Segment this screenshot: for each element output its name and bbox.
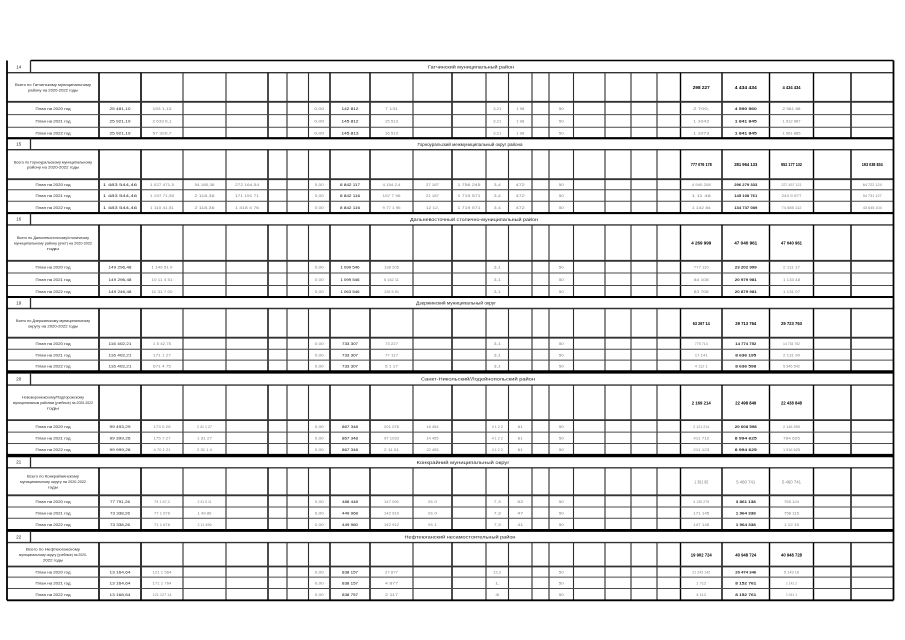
svg-text:227 457 121: 227 457 121 xyxy=(782,182,803,187)
svg-text:794 625: 794 625 xyxy=(783,436,801,441)
svg-text:0,00: 0,00 xyxy=(315,499,325,504)
svg-text:149 296,48: 149 296,48 xyxy=(109,265,133,270)
svg-text:411 712: 411 712 xyxy=(693,436,710,441)
svg-text:50: 50 xyxy=(559,130,565,135)
svg-text:годы: годы xyxy=(47,246,59,251)
svg-text:449 968: 449 968 xyxy=(342,510,359,515)
svg-text:4 70 1 21: 4 70 1 21 xyxy=(154,447,172,452)
svg-text:50: 50 xyxy=(559,424,565,429)
svg-text:22: 22 xyxy=(16,534,21,539)
svg-text:73 338,26: 73 338,26 xyxy=(110,522,131,527)
svg-text:1 49 86: 1 49 86 xyxy=(198,510,213,515)
svg-text:99 493,29: 99 493,29 xyxy=(110,424,132,429)
svg-text:22 455: 22 455 xyxy=(427,447,440,452)
svg-text:Нефтеюганский несамостоятельны: Нефтеюганский несамостоятельный район xyxy=(405,535,517,540)
svg-text:22 498 849: 22 498 849 xyxy=(735,400,757,405)
svg-text:272 164,54: 272 164,54 xyxy=(235,182,260,187)
svg-text:0,00: 0,00 xyxy=(315,581,325,586)
svg-text:0,00: 0,00 xyxy=(315,510,325,515)
svg-text:50: 50 xyxy=(559,363,565,368)
svg-text:13 164,64: 13 164,64 xyxy=(110,570,132,575)
svg-text:План на 2021 год: План на 2021 год xyxy=(36,193,72,198)
svg-text:2 169 214: 2 169 214 xyxy=(692,400,712,405)
svg-text:План на 2021 год: План на 2021 год xyxy=(36,119,72,124)
svg-text:0,00: 0,00 xyxy=(315,436,325,441)
svg-text:0,00: 0,00 xyxy=(315,289,325,294)
svg-text:12,2: 12,2 xyxy=(493,570,502,575)
svg-text:5 1 17: 5 1 17 xyxy=(385,363,399,368)
svg-text:2 121 214: 2 121 214 xyxy=(693,424,710,429)
svg-text:755 124: 755 124 xyxy=(784,499,800,504)
svg-text:121 1 564: 121 1 564 xyxy=(153,570,173,575)
svg-text:План на 2022 год: План на 2022 год xyxy=(36,205,72,210)
svg-text:298 227: 298 227 xyxy=(693,85,711,90)
svg-text:91 0: 91 0 xyxy=(428,510,438,515)
svg-text:11 31 7 00: 11 31 7 00 xyxy=(152,289,174,294)
svg-text:153 1,13: 153 1,13 xyxy=(153,106,173,111)
svg-text:63 267 14: 63 267 14 xyxy=(693,321,711,326)
svg-text:6 162 11: 6 162 11 xyxy=(384,277,400,282)
svg-text:20 608 598: 20 608 598 xyxy=(735,424,758,429)
svg-text:134 737 089: 134 737 089 xyxy=(734,205,758,210)
svg-text:1 719 571: 1 719 571 xyxy=(458,193,482,198)
svg-text:4 1 2 2: 4 1 2 2 xyxy=(492,447,504,452)
svg-text:0,00: 0,00 xyxy=(314,119,325,124)
svg-text:47 040 961: 47 040 961 xyxy=(781,241,803,246)
svg-text:1 133 48: 1 133 48 xyxy=(783,277,801,282)
svg-text:8 842 116: 8 842 116 xyxy=(340,193,361,198)
svg-text:16 513: 16 513 xyxy=(385,130,399,135)
svg-text:3,1: 3,1 xyxy=(494,277,502,282)
svg-text:План на 2022 год: План на 2022 год xyxy=(36,289,72,294)
svg-text:171 1 27: 171 1 27 xyxy=(153,352,172,357)
svg-text:8 994 625: 8 994 625 xyxy=(735,447,758,452)
svg-text:50: 50 xyxy=(559,581,565,586)
svg-text:243 9 577: 243 9 577 xyxy=(782,193,803,198)
svg-text:838 157: 838 157 xyxy=(342,581,359,586)
svg-text:27 877: 27 877 xyxy=(385,570,399,575)
svg-text:1 12 15: 1 12 15 xyxy=(784,522,800,527)
svg-text:149 246,48: 149 246,48 xyxy=(109,289,133,294)
svg-text:1 063 546: 1 063 546 xyxy=(341,289,361,294)
svg-text:7,3: 7,3 xyxy=(494,522,502,527)
svg-text:61: 61 xyxy=(518,436,524,441)
svg-text:50: 50 xyxy=(559,522,565,527)
svg-text:50: 50 xyxy=(559,352,565,357)
svg-text:План на 2020 год: План на 2020 год xyxy=(36,182,72,187)
svg-text:171 1 764: 171 1 764 xyxy=(153,581,173,586)
svg-text:43 645 104: 43 645 104 xyxy=(863,205,883,210)
svg-text:19 902 724: 19 902 724 xyxy=(691,552,713,557)
svg-text:73 227: 73 227 xyxy=(385,341,399,346)
svg-text:4 112: 4 112 xyxy=(696,592,707,597)
svg-text:Всего по Дзержинскому муниципа: Всего по Дзержинскому муниципальному xyxy=(16,318,90,323)
svg-text:147 145: 147 145 xyxy=(693,522,710,527)
svg-text:21 187: 21 187 xyxy=(426,193,440,198)
svg-text:14: 14 xyxy=(16,64,21,69)
svg-text:175 7 27: 175 7 27 xyxy=(154,436,172,441)
svg-text:4 434 434: 4 434 434 xyxy=(735,85,758,90)
svg-text:1 961 885: 1 961 885 xyxy=(783,130,802,135)
svg-text:54 180,36: 54 180,36 xyxy=(195,182,216,187)
svg-text:3,1: 3,1 xyxy=(494,289,502,294)
svg-text:47: 47 xyxy=(517,510,524,515)
svg-text:2 41 5 11: 2 41 5 11 xyxy=(198,499,213,504)
svg-text:61: 61 xyxy=(518,424,524,429)
svg-text:Всего по Горноуральскому муниц: Всего по Горноуральскому муниципальному xyxy=(14,159,92,164)
svg-text:2 31 1 4: 2 31 1 4 xyxy=(197,447,213,452)
svg-text:4 877: 4 877 xyxy=(385,581,399,586)
svg-text:52: 52 xyxy=(517,499,524,504)
svg-text:2 11 496: 2 11 496 xyxy=(198,522,213,527)
svg-text:7 131: 7 131 xyxy=(385,106,399,111)
svg-text:5 460 741: 5 460 741 xyxy=(782,479,802,484)
svg-text:97 1033: 97 1033 xyxy=(384,436,400,441)
svg-text:1 027 471,5: 1 027 471,5 xyxy=(150,182,175,187)
svg-text:552 177 132: 552 177 132 xyxy=(781,162,803,167)
svg-text:8 636 598: 8 636 598 xyxy=(735,363,757,368)
svg-text:8 152 761: 8 152 761 xyxy=(735,581,757,586)
svg-text:1 483 544,46: 1 483 544,46 xyxy=(103,182,138,187)
svg-text:15 513: 15 513 xyxy=(385,119,399,124)
svg-text:25 921,19: 25 921,19 xyxy=(110,119,132,124)
svg-text:20 979 981: 20 979 981 xyxy=(735,277,758,282)
svg-text:0,00: 0,00 xyxy=(315,182,325,187)
svg-text:2 11 01: 2 11 01 xyxy=(384,447,400,452)
svg-text:муниципальным районам (учебные: муниципальным районам (учебные) на 2020-… xyxy=(13,400,94,405)
svg-text:0,00: 0,00 xyxy=(315,205,325,210)
svg-text:0,00: 0,00 xyxy=(315,447,325,452)
svg-text:21: 21 xyxy=(16,460,21,465)
svg-text:74 585 112: 74 585 112 xyxy=(782,205,803,210)
svg-text:План на 2022 год: План на 2022 год xyxy=(36,363,72,368)
svg-text:1 841 845: 1 841 845 xyxy=(735,119,758,124)
svg-text:142 812: 142 812 xyxy=(342,106,360,111)
svg-text:5 149 16: 5 149 16 xyxy=(784,570,800,575)
svg-text:1 141 2: 1 141 2 xyxy=(786,581,798,586)
svg-text:50: 50 xyxy=(559,341,565,346)
svg-text:1 964 338: 1 964 338 xyxy=(736,522,757,527)
svg-text:План на 2022 год: План на 2022 год xyxy=(36,592,72,597)
svg-text:3,21: 3,21 xyxy=(493,119,502,124)
svg-text:План на 2022 год: План на 2022 год xyxy=(36,447,72,452)
svg-text:29 723 763: 29 723 763 xyxy=(781,321,803,326)
svg-text:0,00: 0,00 xyxy=(315,352,325,357)
svg-text:41: 41 xyxy=(517,522,524,527)
svg-text:1 5 42,75: 1 5 42,75 xyxy=(153,341,172,346)
svg-text:83 708: 83 708 xyxy=(694,289,710,294)
svg-text:145 108 761: 145 108 761 xyxy=(734,193,758,198)
svg-text:0,00: 0,00 xyxy=(315,265,325,270)
svg-text:20: 20 xyxy=(16,377,21,382)
svg-text:867 348: 867 348 xyxy=(342,436,359,441)
svg-text:муниципальному району (учет) н: муниципальному району (учет) на 2020-202… xyxy=(14,240,93,245)
svg-text:9 77 1 96: 9 77 1 96 xyxy=(383,205,402,210)
svg-text:0,00: 0,00 xyxy=(314,106,325,111)
svg-text:756 115: 756 115 xyxy=(784,510,800,515)
svg-text:57 320,7: 57 320,7 xyxy=(153,130,173,135)
svg-text:91 1: 91 1 xyxy=(428,522,438,527)
svg-text:1 418 4 76: 1 418 4 76 xyxy=(235,205,260,210)
svg-text:61: 61 xyxy=(518,447,524,452)
svg-text:1 98: 1 98 xyxy=(516,106,525,111)
svg-text:201 076: 201 076 xyxy=(384,424,400,429)
svg-text:1 841 845: 1 841 845 xyxy=(735,130,758,135)
svg-text:50: 50 xyxy=(559,119,565,124)
svg-text:5 460 741: 5 460 741 xyxy=(736,479,756,484)
svg-text:50: 50 xyxy=(559,265,565,270)
svg-text:14 455: 14 455 xyxy=(427,436,440,441)
svg-text:1 483 544,46: 1 483 544,46 xyxy=(103,205,138,210)
svg-text:20 879 981: 20 879 981 xyxy=(735,289,758,294)
svg-text:99 399,26: 99 399,26 xyxy=(110,436,132,441)
svg-text:План на 2021 год: План на 2021 год xyxy=(36,352,72,357)
svg-text:2 633 6,1: 2 633 6,1 xyxy=(153,119,173,124)
svg-text:1 131 07: 1 131 07 xyxy=(783,289,801,294)
svg-text:472: 472 xyxy=(516,193,526,198)
svg-text:Всего по Нефтеюганскому: Всего по Нефтеюганскому xyxy=(26,547,80,552)
svg-text:733 307: 733 307 xyxy=(342,352,359,357)
svg-text:73 338,26: 73 338,26 xyxy=(110,510,131,515)
svg-text:План на 2020 год: План на 2020 год xyxy=(36,265,72,270)
svg-text:4 154 2,4: 4 154 2,4 xyxy=(383,182,402,187)
svg-text:3 861 138: 3 861 138 xyxy=(736,499,757,504)
svg-text:2 111 17: 2 111 17 xyxy=(783,265,801,270)
svg-text:472: 472 xyxy=(516,182,526,187)
svg-text:0,00: 0,00 xyxy=(315,592,325,597)
svg-text:2 700,: 2 700, xyxy=(693,106,709,111)
svg-text:2022 годы: 2022 годы xyxy=(43,557,63,562)
svg-text:47 040 961: 47 040 961 xyxy=(734,241,758,246)
svg-text:1 912 987: 1 912 987 xyxy=(783,119,802,124)
svg-text:району на 2020-2022 годы: району на 2020-2022 годы xyxy=(27,165,79,170)
svg-text:2 118,36: 2 118,36 xyxy=(195,193,216,198)
svg-text:116 402,21: 116 402,21 xyxy=(109,363,133,368)
svg-text:1 916 625: 1 916 625 xyxy=(783,447,801,452)
svg-text:121 127 14: 121 127 14 xyxy=(153,592,173,597)
svg-text:1 483 544,46: 1 483 544,46 xyxy=(103,193,138,198)
svg-text:2 117: 2 117 xyxy=(385,592,399,597)
svg-text:1 011 1: 1 011 1 xyxy=(786,592,798,597)
svg-text:1 1042: 1 1042 xyxy=(693,119,710,124)
svg-text:14 734 752: 14 734 752 xyxy=(783,341,801,346)
svg-text:годы: годы xyxy=(47,406,59,411)
svg-text:449 960: 449 960 xyxy=(342,522,359,527)
svg-text:1 31 27: 1 31 27 xyxy=(197,436,213,441)
svg-text:777 076 178: 777 076 178 xyxy=(691,162,713,167)
svg-text:округу на 2020-2022 годы: округу на 2020-2022 годы xyxy=(28,323,78,328)
svg-text:1 099 546: 1 099 546 xyxy=(341,265,361,270)
svg-text:Всего по Конкрайнинскому: Всего по Конкрайнинскому xyxy=(27,474,79,479)
svg-text:2 41 1 27: 2 41 1 27 xyxy=(197,424,213,429)
svg-text:муниципальному округу на 2020-: муниципальному округу на 2020-2022 xyxy=(20,479,87,484)
svg-text:План на 2021 год: План на 2021 год xyxy=(36,581,72,586)
svg-text:Горноуральский межмуниципальны: Горноуральский межмуниципальный округ ра… xyxy=(418,142,524,147)
svg-text:193 038 834: 193 038 834 xyxy=(862,162,884,167)
svg-text:3,4: 3,4 xyxy=(494,205,502,210)
svg-text:472: 472 xyxy=(516,205,526,210)
svg-text:8 842 116: 8 842 116 xyxy=(340,205,361,210)
svg-text:71 1 676: 71 1 676 xyxy=(154,522,171,527)
svg-text:149 296,48: 149 296,48 xyxy=(109,277,133,282)
svg-text:1 110 41,51: 1 110 41,51 xyxy=(150,205,175,210)
svg-text:138 205: 138 205 xyxy=(384,265,400,270)
svg-text:4 269 999: 4 269 999 xyxy=(691,241,712,246)
svg-text:3,1: 3,1 xyxy=(494,363,502,368)
svg-text:0,00: 0,00 xyxy=(315,277,325,282)
svg-text:14 774 752: 14 774 752 xyxy=(735,341,757,346)
svg-text:1 361 95: 1 361 95 xyxy=(694,479,709,484)
svg-text:13 164,64: 13 164,64 xyxy=(110,581,132,586)
svg-text:3,21: 3,21 xyxy=(493,130,502,135)
svg-text:29 713 764: 29 713 764 xyxy=(735,321,757,326)
svg-text:50: 50 xyxy=(559,205,565,210)
svg-text:План на 2020 год: План на 2020 год xyxy=(36,570,72,575)
svg-text:1 98: 1 98 xyxy=(516,119,525,124)
svg-text:142 912: 142 912 xyxy=(384,522,400,527)
svg-text:План на 2021 год: План на 2021 год xyxy=(36,436,72,441)
svg-text:1 756 245: 1 756 245 xyxy=(458,182,482,187)
svg-text:173 0 25: 173 0 25 xyxy=(154,424,172,429)
svg-text:22 438 848: 22 438 848 xyxy=(781,400,803,405)
svg-text:50: 50 xyxy=(559,499,565,504)
svg-text:157 7 96: 157 7 96 xyxy=(383,193,402,198)
svg-text:16 454: 16 454 xyxy=(427,424,440,429)
svg-text:1,: 1, xyxy=(495,581,499,586)
svg-text:15: 15 xyxy=(16,142,21,147)
svg-text:3,1: 3,1 xyxy=(494,352,502,357)
svg-text:0,00: 0,00 xyxy=(315,522,325,527)
svg-text:671 4 75: 671 4 75 xyxy=(153,363,172,368)
svg-text:733 307: 733 307 xyxy=(342,363,359,368)
svg-text:147 092: 147 092 xyxy=(384,499,400,504)
svg-text:3,4: 3,4 xyxy=(494,182,502,187)
svg-text:25 921,19: 25 921,19 xyxy=(110,130,132,135)
svg-text:0,00: 0,00 xyxy=(314,130,325,135)
svg-text:району на 2020-2022 годы: району на 2020-2022 годы xyxy=(28,87,78,92)
svg-text:3,21: 3,21 xyxy=(493,106,502,111)
svg-text:73 1 67,2: 73 1 67,2 xyxy=(154,499,171,504)
svg-text:8 152 761: 8 152 761 xyxy=(735,592,757,597)
svg-text:171 145: 171 145 xyxy=(693,510,710,515)
svg-text:Всего по Дальневосточному/стол: Всего по Дальневосточному/столичному xyxy=(17,235,89,240)
svg-text:25 481,10: 25 481,10 xyxy=(110,106,132,111)
svg-text:838 757: 838 757 xyxy=(342,592,359,597)
svg-text:40 948 728: 40 948 728 xyxy=(781,552,803,557)
svg-text:4 130 275: 4 130 275 xyxy=(693,499,710,504)
svg-text:296 279 333: 296 279 333 xyxy=(734,182,758,187)
svg-text:13 168,64: 13 168,64 xyxy=(110,592,132,597)
svg-text:84 108: 84 108 xyxy=(694,277,710,282)
svg-text:4 1 2 2: 4 1 2 2 xyxy=(492,436,504,441)
svg-text:План на 2020 год: План на 2020 год xyxy=(36,106,72,111)
svg-text:2 118,36: 2 118,36 xyxy=(195,205,216,210)
svg-text:5 346 542: 5 346 542 xyxy=(783,363,801,368)
svg-text:8 842 117: 8 842 117 xyxy=(340,182,361,187)
svg-text:19: 19 xyxy=(16,300,21,305)
svg-text:3,4: 3,4 xyxy=(494,193,502,198)
svg-text:50: 50 xyxy=(559,510,565,515)
svg-text:Гатчинский муниципальный район: Гатчинский муниципальный район xyxy=(428,64,515,69)
svg-text:7,3: 7,3 xyxy=(494,499,502,504)
svg-text:12 12,: 12 12, xyxy=(426,205,439,210)
svg-text:23 202 999: 23 202 999 xyxy=(735,265,758,270)
svg-text:1 964 338: 1 964 338 xyxy=(736,510,757,515)
svg-text:Нововоронежскому/Подпорожскому: Нововоронежскому/Подпорожскому xyxy=(22,395,84,400)
svg-text:0,00: 0,00 xyxy=(315,363,325,368)
svg-text:77 1 676: 77 1 676 xyxy=(154,510,171,515)
svg-text:867 348: 867 348 xyxy=(342,424,359,429)
svg-text:1 719 571: 1 719 571 xyxy=(458,205,482,210)
svg-text:1 1073: 1 1073 xyxy=(693,130,710,135)
svg-text:Санкт-Никольский/Лодейнопольск: Санкт-Никольский/Лодейнопольский район xyxy=(421,377,536,382)
svg-text:116 402,21: 116 402,21 xyxy=(109,352,133,357)
svg-text:777 110: 777 110 xyxy=(694,265,710,270)
svg-text:1 98: 1 98 xyxy=(516,130,525,135)
svg-text:50: 50 xyxy=(559,570,565,575)
svg-text:0,00: 0,00 xyxy=(315,570,325,575)
svg-text:План на 2022 год: План на 2022 год xyxy=(36,522,72,527)
svg-text:Конкрайний муниципальный округ: Конкрайний муниципальный округ xyxy=(417,460,511,465)
svg-text:488 448: 488 448 xyxy=(342,499,359,504)
svg-text:91 0: 91 0 xyxy=(428,499,438,504)
svg-text:27 187: 27 187 xyxy=(426,182,440,187)
svg-text:Дальневосточный столично-муниц: Дальневосточный столично-муниципальный р… xyxy=(410,217,539,222)
svg-text:План на 2021 год: План на 2021 год xyxy=(36,277,72,282)
svg-text:126 5 91: 126 5 91 xyxy=(384,289,400,294)
svg-text:4 590 560: 4 590 560 xyxy=(735,106,758,111)
svg-text:64 722 124: 64 722 124 xyxy=(863,182,883,187)
svg-text:3,1: 3,1 xyxy=(494,341,502,346)
svg-text:733 307: 733 307 xyxy=(342,341,359,346)
svg-text:211 123: 211 123 xyxy=(693,447,710,452)
svg-text:План на 2020 год: План на 2020 год xyxy=(36,499,72,504)
svg-text:0,00: 0,00 xyxy=(315,341,325,346)
svg-text:40 948 724: 40 948 724 xyxy=(735,552,757,557)
svg-text:2 131 90: 2 131 90 xyxy=(783,352,801,357)
svg-text:2 981 88: 2 981 88 xyxy=(783,106,802,111)
svg-text:867 348: 867 348 xyxy=(342,447,359,452)
svg-text:1 099 546: 1 099 546 xyxy=(341,277,361,282)
svg-text:50: 50 xyxy=(559,289,565,294)
svg-text:2 146 595: 2 146 595 xyxy=(783,424,801,429)
svg-text:7,3: 7,3 xyxy=(494,510,502,515)
svg-text:План на 2022 год: План на 2022 год xyxy=(36,130,72,135)
svg-text:94 731 127: 94 731 127 xyxy=(863,193,883,198)
svg-text:1 197 71,55: 1 197 71,55 xyxy=(150,193,175,198)
svg-text:281 964 133: 281 964 133 xyxy=(734,162,758,167)
svg-text:8 994 625: 8 994 625 xyxy=(735,436,758,441)
svg-text:171 151 71: 171 151 71 xyxy=(235,193,260,198)
svg-text:50: 50 xyxy=(559,193,565,198)
svg-text:99 999,26: 99 999,26 xyxy=(110,447,132,452)
svg-text:0,00: 0,00 xyxy=(315,424,325,429)
svg-text:50: 50 xyxy=(559,182,565,187)
svg-text:муниципальному округу (учебные: муниципальному округу (учебные) на 2020- xyxy=(19,552,88,557)
svg-text:50: 50 xyxy=(559,436,565,441)
svg-text:8 636 195: 8 636 195 xyxy=(735,352,757,357)
svg-text:77 117: 77 117 xyxy=(385,352,399,357)
svg-text:50: 50 xyxy=(559,106,565,111)
svg-text:116 402,21: 116 402,21 xyxy=(109,341,133,346)
svg-text:145 813: 145 813 xyxy=(342,130,360,135)
svg-text:1 712: 1 712 xyxy=(696,581,707,586)
svg-text:21 243 142: 21 243 142 xyxy=(692,570,711,575)
svg-text:Всего по Гатчинскому муниципал: Всего по Гатчинскому муниципальному xyxy=(15,82,91,87)
svg-text:10 11 4 51: 10 11 4 51 xyxy=(152,277,174,282)
svg-text:3,1: 3,1 xyxy=(494,265,502,270)
svg-text:142 919: 142 919 xyxy=(384,510,400,515)
